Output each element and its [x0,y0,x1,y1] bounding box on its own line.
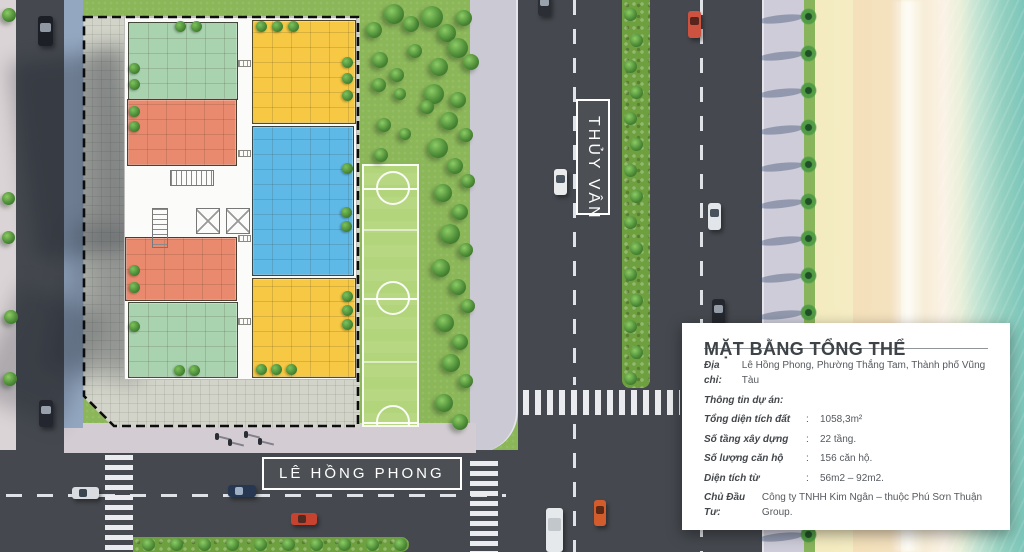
car-windshield [690,17,699,25]
pedestrian-icon [228,439,232,446]
hedge-bush-icon [630,242,643,255]
tree-icon [129,282,140,293]
panel-section-heading: Thông tin dự án: [704,393,988,408]
car-icon [228,485,256,497]
info-panel: MẶT BẰNG TỔNG THỂ Địa chỉ: Lê Hồng Phong… [682,323,1010,530]
plan-unit-orange-lower-left [125,237,237,301]
tree-icon [2,231,15,244]
hedge-bush-icon [630,138,643,151]
tree-icon [420,100,434,114]
tree-icon [403,16,419,32]
tree-icon [436,314,454,332]
tree-icon [452,334,468,350]
car-windshield [298,515,306,523]
car-icon [291,513,317,525]
palm-tree-icon [800,156,817,173]
palm-tree-icon [800,304,817,321]
tree-icon [390,68,404,82]
tree-icon [342,291,353,302]
tree-icon [432,259,450,277]
tree-icon [434,184,452,202]
panel-title: MẶT BẰNG TỔNG THỂ [704,339,906,360]
address-value: Lê Hồng Phong, Phường Thắng Tam, Thành p… [742,358,988,388]
tree-icon [189,365,200,376]
hedge-bush-icon [226,538,239,551]
elevator-glyph [196,208,220,234]
car-windshield [235,487,243,495]
field-line [364,361,417,363]
car-icon [39,400,53,427]
plan-unit-yellow-top-right [252,20,356,124]
hedge-bush-icon [624,320,637,333]
hedge-bush-icon [394,538,407,551]
balcony-hatch [238,235,251,242]
car-windshield [540,0,549,6]
tree-icon [342,305,353,316]
developer-value: Công ty TNHH Kim Ngân – thuộc Phú Sơn Th… [762,490,988,520]
elevator-glyph [226,208,250,234]
panel-address-row: Địa chỉ: Lê Hồng Phong, Phường Thắng Tam… [704,358,988,388]
tree-icon [129,79,140,90]
tree-icon [271,364,282,375]
sidewalk [470,0,518,453]
tree-icon [129,121,140,132]
hedge-bush-icon [630,190,643,203]
crosswalk [105,455,133,552]
tree-icon [463,54,479,70]
hedge-bush-icon [142,538,155,551]
palm-tree-icon [800,45,817,62]
field-center-circle [376,405,410,427]
panel-row-land-area: Tổng diện tích đất : 1058,3m² [704,412,988,427]
row-colon: : [806,451,820,466]
row-value: 22 tầng. [820,432,856,447]
hedge-bush-icon [630,34,643,47]
field-center-circle [376,171,410,205]
lane-dash-line [573,424,576,552]
tree-icon [421,6,443,28]
car-icon [546,508,563,552]
palm-tree-icon [800,82,817,99]
tree-icon [342,57,353,68]
tree-icon [450,92,466,108]
tree-icon [129,63,140,74]
site-plan-scene: THỦY VÂN LÊ HỒNG PHONG MẶT BẰNG TỔNG THỂ… [0,0,1024,552]
palm-tree-icon [800,8,817,25]
row-colon: : [806,471,820,486]
tree-icon [447,158,463,174]
car-windshield [596,506,604,514]
row-value: 56m2 – 92m2. [820,471,884,486]
tree-icon [442,354,460,372]
tree-icon [341,221,352,232]
tree-icon [342,90,353,101]
plan-unit-orange-upper-left [127,99,237,166]
hedge-bush-icon [630,86,643,99]
plan-unit-yellow-bottom-right [252,278,356,378]
row-colon: : [806,412,820,427]
car-windshield [556,175,565,183]
tree-icon [342,319,353,330]
stairs-glyph [152,208,168,248]
road-label-le-hong-phong: LÊ HỒNG PHONG [262,457,462,490]
tree-icon [256,364,267,375]
road-label-thuy-van: THỦY VÂN [576,99,610,215]
hedge-bush-icon [624,112,637,125]
panel-row-apartments: Số lượng căn hộ : 156 căn hộ. [704,451,988,466]
tree-icon [459,374,473,388]
tree-icon [450,279,466,295]
panel-developer-row: Chủ Đầu Tư: Công ty TNHH Kim Ngân – thuộ… [704,490,988,520]
car-icon [554,169,567,195]
tree-icon [459,128,473,142]
tree-icon [341,207,352,218]
tree-icon [452,414,468,430]
plan-unit-blue-right [252,126,354,276]
tree-icon [2,8,16,22]
car-windshield [40,23,51,32]
hedge-bush-icon [366,538,379,551]
hedge-bush-icon [624,216,637,229]
tree-icon [440,112,458,130]
tree-icon [372,78,386,92]
tree-icon [435,394,453,412]
car-icon [708,203,721,230]
tree-icon [174,365,185,376]
plan-unit-green-top-left [128,22,238,100]
tree-icon [430,58,448,76]
hedge-bush-icon [170,538,183,551]
car-icon [38,16,53,46]
tree-icon [428,138,448,158]
tree-icon [129,265,140,276]
tree-icon [129,106,140,117]
car-icon [538,0,551,16]
row-label: Số tầng xây dựng [704,432,806,447]
hedge-bush-icon [624,60,637,73]
tree-icon [377,118,391,132]
tree-icon [452,204,468,220]
tree-icon [286,364,297,375]
tree-icon [394,88,406,100]
pedestrian-icon [215,433,219,440]
panel-row-floors: Số tầng xây dựng : 22 tầng. [704,432,988,447]
palm-tree-icon [800,119,817,136]
pedestrian-icon [244,431,248,438]
tree-icon [129,321,140,332]
balcony-hatch [238,150,251,157]
crosswalk [470,461,498,552]
car-windshield [79,489,87,497]
tree-icon [191,21,202,32]
palm-tree-icon [800,267,817,284]
tree-icon [408,44,422,58]
car-windshield [41,406,51,414]
hedge-bush-icon [630,346,643,359]
developer-label: Chủ Đầu Tư: [704,490,758,520]
car-icon [72,487,99,499]
stairs-glyph [170,170,214,186]
car-windshield [548,518,561,531]
car-icon [594,500,606,526]
tree-icon [342,73,353,84]
balcony-hatch [238,318,251,325]
tree-icon [459,243,473,257]
row-label: Số lượng căn hộ [704,451,806,466]
hedge-bush-icon [310,538,323,551]
tree-icon [272,21,283,32]
palm-tree-icon [800,193,817,210]
tree-icon [2,192,15,205]
row-value: 156 căn hộ. [820,451,872,466]
field-center-circle [376,281,410,315]
palm-tree-icon [800,230,817,247]
hedge-bush-icon [338,538,351,551]
field-line [364,229,417,231]
tree-icon [456,10,472,26]
tree-icon [374,148,388,162]
tree-icon [175,21,186,32]
tree-icon [384,4,404,24]
hedge-bush-icon [282,538,295,551]
car-icon [688,11,701,38]
section-heading-label: Thông tin dự án: [704,393,783,408]
hedge-bush-icon [624,268,637,281]
tree-icon [399,128,411,140]
tree-icon [461,299,475,313]
tree-icon [372,52,388,68]
tree-icon [440,224,460,244]
tree-icon [288,21,299,32]
hedge-bush-icon [630,294,643,307]
row-colon: : [806,432,820,447]
tree-icon [4,310,18,324]
row-label: Tổng diện tích đất [704,412,806,427]
tree-icon [256,21,267,32]
car-icon [712,299,725,325]
hedge-bush-icon [254,538,267,551]
car-windshield [710,209,719,217]
soccer-field [362,164,419,427]
hedge-bush-icon [198,538,211,551]
pedestrian-icon [258,438,262,445]
tree-icon [461,174,475,188]
tree-icon [366,22,382,38]
tree-icon [3,372,17,386]
row-value: 1058,3m² [820,412,862,427]
balcony-hatch [238,60,251,67]
hedge-bush-icon [624,372,637,385]
tree-icon [342,163,353,174]
hedge-bush-icon [624,164,637,177]
panel-row-unit-sizes: Diện tích từ : 56m2 – 92m2. [704,471,988,486]
car-windshield [714,305,723,313]
hedge-bush-icon [624,8,637,21]
crosswalk [523,390,680,415]
row-label: Diện tích từ [704,471,806,486]
address-label: Địa chỉ: [704,358,738,388]
